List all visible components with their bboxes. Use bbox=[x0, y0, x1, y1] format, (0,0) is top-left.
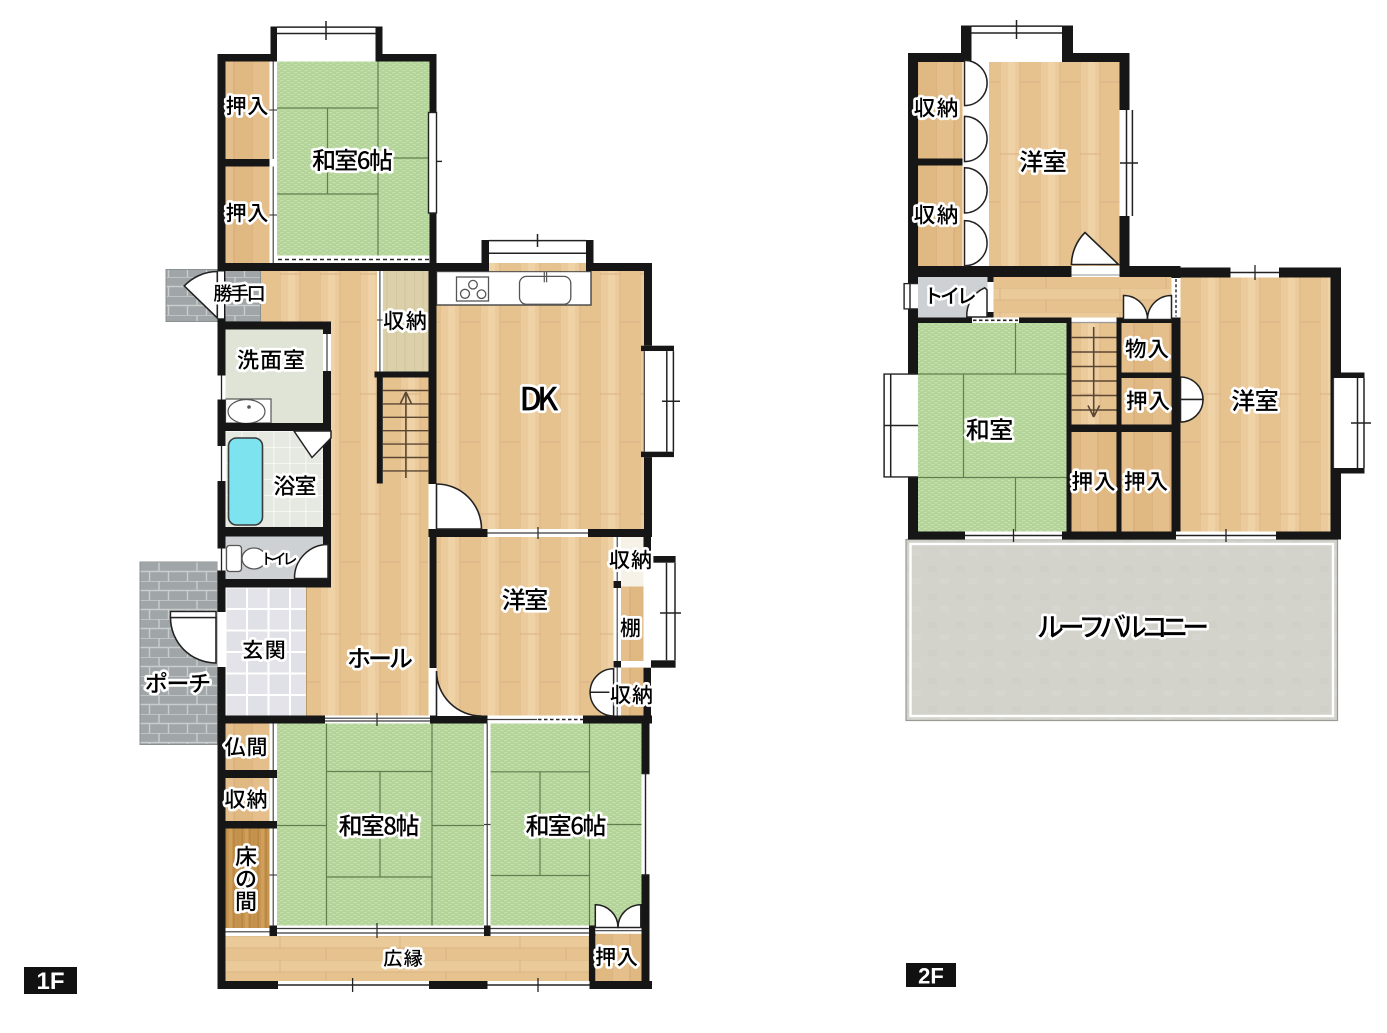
svg-text:2F: 2F bbox=[918, 964, 944, 989]
svg-text:1F: 1F bbox=[36, 968, 64, 995]
